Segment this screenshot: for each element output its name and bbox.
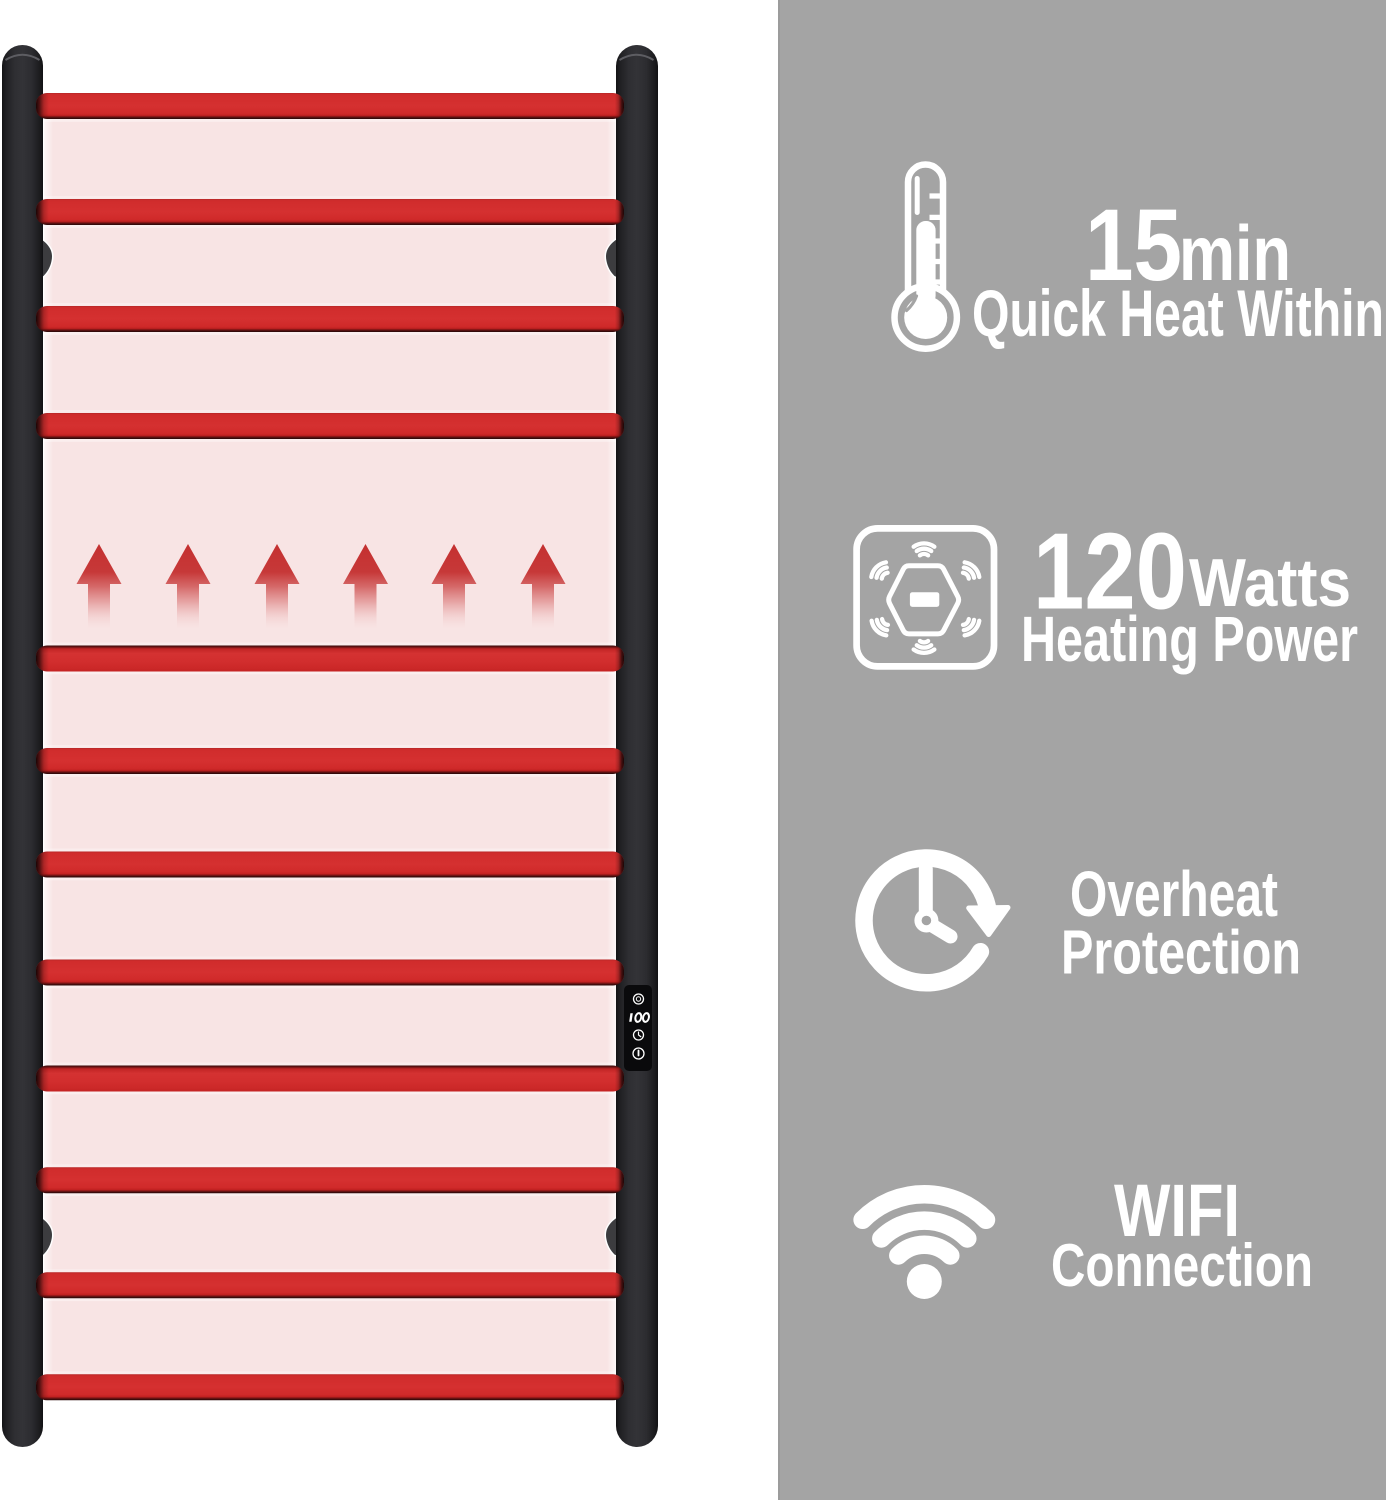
svg-text:Quick Heat Within: Quick Heat Within xyxy=(972,276,1384,350)
svg-text:Connection: Connection xyxy=(1051,1232,1313,1299)
svg-text:Protection: Protection xyxy=(1061,919,1301,988)
svg-text:Heating Power: Heating Power xyxy=(1021,603,1358,675)
